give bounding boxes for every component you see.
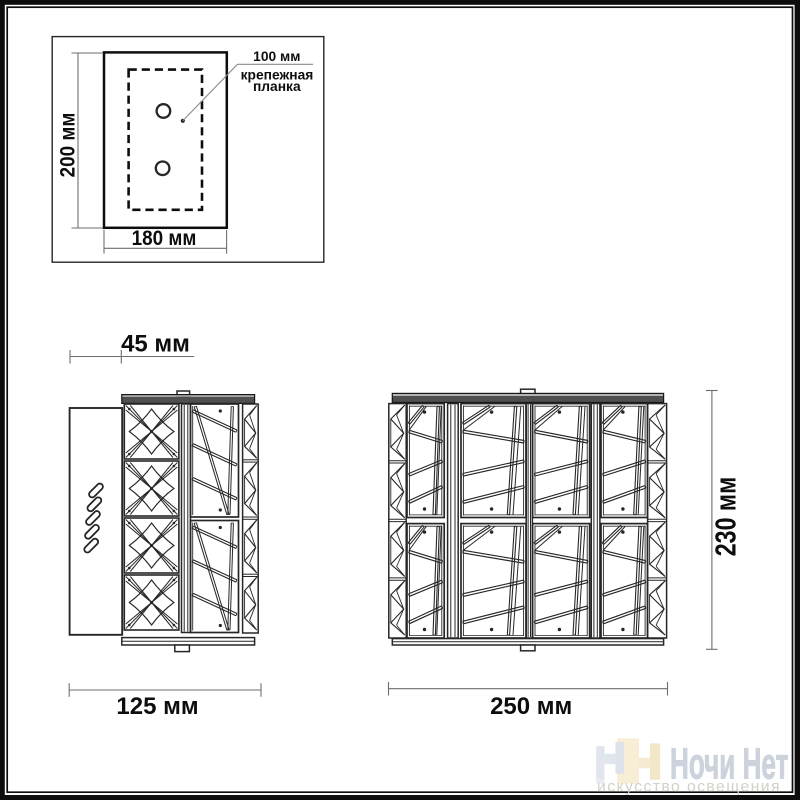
svg-text:искусство освещения: искусство освещения bbox=[597, 779, 781, 796]
svg-text:планка: планка bbox=[253, 79, 301, 94]
svg-text:250 мм: 250 мм bbox=[490, 693, 572, 720]
svg-text:230 мм: 230 мм bbox=[709, 477, 742, 556]
svg-text:180 мм: 180 мм bbox=[132, 227, 197, 250]
svg-text:200 мм: 200 мм bbox=[56, 113, 79, 178]
svg-text:45 мм: 45 мм bbox=[121, 331, 190, 358]
svg-text:100 мм: 100 мм bbox=[253, 49, 300, 64]
svg-text:125 мм: 125 мм bbox=[116, 693, 198, 720]
